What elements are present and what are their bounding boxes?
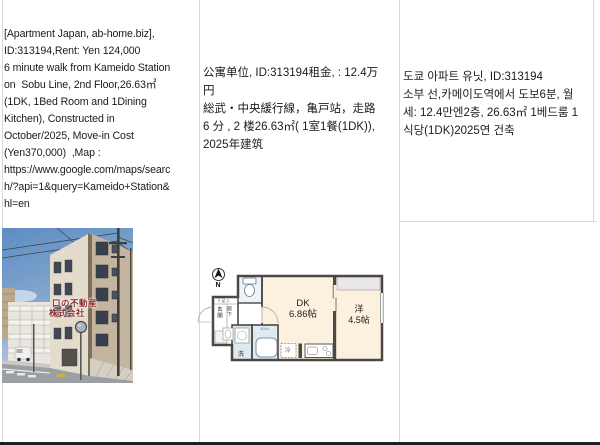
bath-size-label: 1014: [260, 326, 269, 331]
north-compass-icon: [213, 269, 225, 281]
washing-machine: [235, 328, 249, 343]
dk-size: 6.86帖: [272, 309, 334, 320]
entrance-label: 玄関: [215, 306, 223, 319]
western-name: 洋: [337, 304, 381, 315]
western-room-label: 洋 4.5帖: [337, 304, 381, 326]
photo-watermark-line2: 株式会社: [49, 307, 85, 319]
floorplan-image: N DK 6.86帖 洋 4.5帖 玄関 廊下 洗 冷 下足入 1014: [196, 265, 388, 365]
shoe-storage-label: 下足入: [217, 298, 231, 304]
closet: [337, 277, 380, 290]
toilet-fixture: [243, 278, 256, 297]
kitchen-wall-stub: [299, 344, 303, 359]
listing-text-english: [Apartment Japan, ab-home.biz], ID:31319…: [4, 26, 199, 221]
dk-room-label: DK 6.86帖: [272, 298, 334, 320]
listing-text-chinese: 公寓单位, ID:313194租金, : 12.4万 円 総武・中央緩行線，亀戸…: [203, 64, 399, 164]
western-size: 4.5帖: [337, 315, 381, 326]
table-border-right: [593, 0, 594, 221]
parked-van: [15, 347, 31, 361]
entrance-door-arc: [198, 307, 213, 322]
wash-label: 洗: [238, 349, 244, 358]
dk-name: DK: [272, 298, 334, 309]
washbasin: [223, 328, 233, 340]
column-divider-1: [199, 0, 200, 442]
hallway-label: 廊下: [226, 306, 233, 317]
listing-text-korean: 도쿄 아파트 유닛, ID:313194 소부 선,카메이도역에서 도보6분, …: [403, 68, 593, 152]
row-divider: [399, 221, 597, 222]
kitchen-counter: [305, 344, 333, 358]
north-label: N: [216, 282, 221, 289]
bathtub: [256, 338, 277, 357]
building-photo: 口の不動産 株式会社: [2, 228, 133, 383]
listing-page: [Apartment Japan, ab-home.biz], ID:31319…: [0, 0, 600, 445]
fridge-label: 冷: [285, 346, 291, 354]
